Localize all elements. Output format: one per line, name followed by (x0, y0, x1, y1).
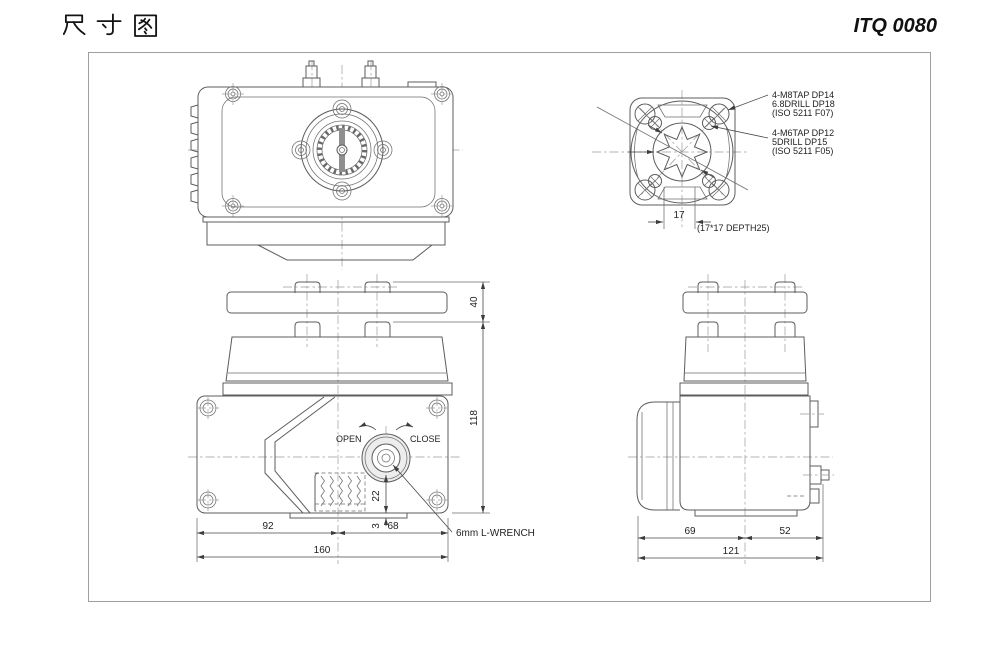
model-number: ITQ 0080 (854, 15, 937, 38)
lower-plug (810, 489, 819, 503)
dim-body-height: 118 (469, 410, 480, 426)
page-title-glyphs (63, 11, 159, 38)
dim-shaft-offset: 22 (371, 490, 382, 502)
dim-depth-total: 121 (723, 546, 740, 557)
flange-note-f07: 4-M8TAP DP14 6.8DRILL DP18 (ISO 5211 F07… (772, 90, 835, 118)
open-label: OPEN (336, 434, 362, 444)
wrench-note: 6mm L-WRENCH (456, 528, 535, 539)
note-f07-line3: (ISO 5211 F07) (772, 108, 833, 118)
open-direction-arrow-icon (359, 426, 376, 430)
gland-bolt-icon (803, 466, 834, 484)
page-title: 尺寸图 (0, 0, 1, 1)
dim-width-left: 92 (262, 521, 274, 532)
side-view: 69 52 121 (628, 274, 834, 564)
flange-note-f05: 4-M6TAP DP12 5DRILL DP15 (ISO 5211 F05) (772, 128, 834, 156)
dim-depth-left: 69 (684, 526, 696, 537)
dim-width-right: 68 (387, 521, 399, 532)
dim-base-plate: 3 (371, 523, 382, 529)
cable-gland-icon (303, 61, 379, 87)
dim-cap-height: 40 (469, 296, 480, 308)
manual-override-knob (362, 434, 410, 482)
motor-housing (637, 402, 680, 510)
dimension-drawing-page: { "header": { "title": "尺寸图", "model": "… (0, 0, 1000, 648)
socket-depth-note: (17*17 DEPTH25) (697, 223, 770, 233)
close-direction-arrow-icon (396, 426, 413, 430)
worm-gear-section (315, 473, 365, 511)
close-label: CLOSE (410, 434, 441, 444)
flange-view: 17 (17*17 DEPTH25) 4-M8TAP DP14 6.8DRILL… (592, 90, 835, 233)
dim-width-total: 160 (314, 545, 331, 556)
drawing-canvas: 17 (17*17 DEPTH25) 4-M8TAP DP14 6.8DRILL… (88, 52, 931, 602)
front-view: OPEN CLOSE 40 118 22 3 92 (188, 274, 535, 564)
dim-depth-right: 52 (779, 526, 791, 537)
top-view (188, 61, 463, 270)
dim-socket-width: 17 (673, 210, 685, 221)
note-f05-line3: (ISO 5211 F05) (772, 146, 833, 156)
